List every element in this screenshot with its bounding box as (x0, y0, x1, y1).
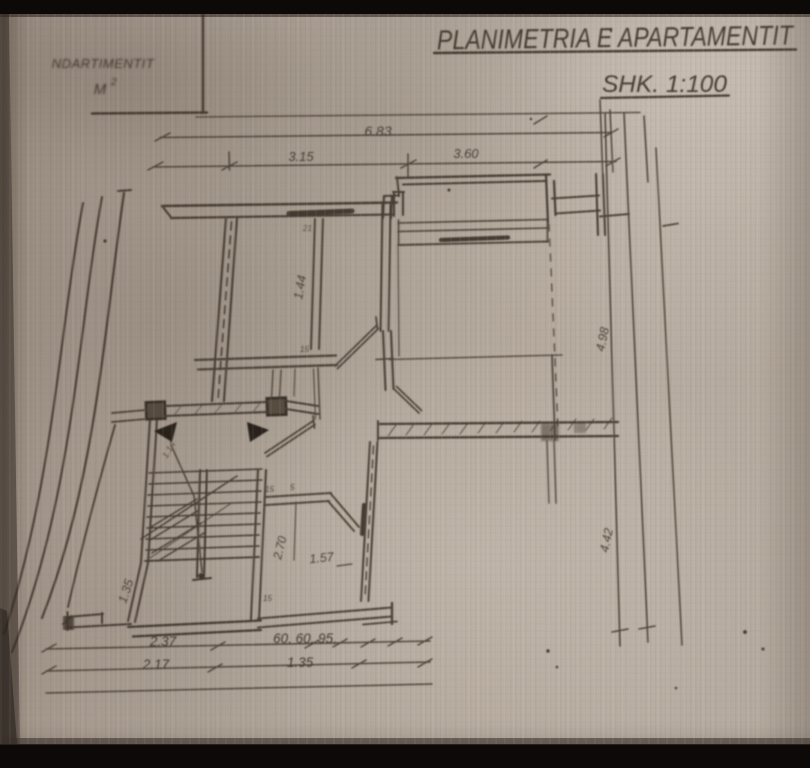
svg-text:SHK. 1:100: SHK. 1:100 (602, 71, 728, 98)
svg-text:21: 21 (302, 224, 312, 233)
svg-text:3.60: 3.60 (453, 146, 479, 161)
svg-text:60, 60, 95,: 60, 60, 95, (273, 631, 337, 646)
svg-text:15: 15 (300, 345, 309, 354)
svg-text:15: 15 (263, 594, 272, 603)
svg-text:6.83: 6.83 (364, 123, 391, 139)
svg-text:3.15: 3.15 (288, 149, 314, 164)
svg-text:1.35: 1.35 (287, 655, 314, 670)
svg-text:2.37: 2.37 (149, 634, 177, 649)
svg-text:15: 15 (265, 485, 274, 494)
svg-text:M: M (94, 81, 107, 98)
svg-text:NDARTIMENTIT: NDARTIMENTIT (52, 56, 155, 71)
svg-text:5: 5 (290, 483, 295, 492)
svg-text:2.17: 2.17 (142, 657, 170, 672)
svg-text:2: 2 (110, 77, 117, 88)
svg-text:1.57: 1.57 (309, 550, 336, 567)
